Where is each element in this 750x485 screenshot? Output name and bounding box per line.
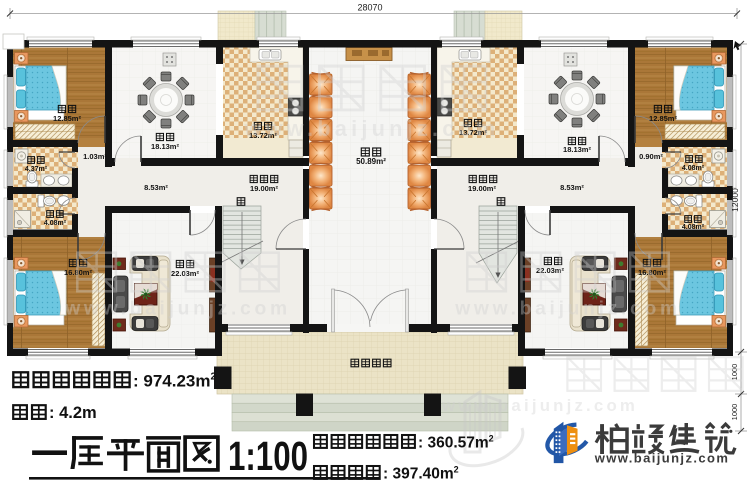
svg-text:: 360.57m2: : 360.57m2	[418, 434, 494, 452]
svg-text:0.90m²: 0.90m²	[639, 152, 663, 161]
svg-text:19.00m²: 19.00m²	[250, 184, 278, 193]
svg-text:12.85m²: 12.85m²	[649, 114, 677, 123]
svg-text:www.baijunjz.com: www.baijunjz.com	[243, 116, 499, 141]
svg-text:: 397.40m2: : 397.40m2	[383, 465, 459, 483]
svg-text:12.85m²: 12.85m²	[53, 114, 81, 123]
svg-text:19.00m²: 19.00m²	[468, 184, 496, 193]
svg-text:www.baijunjz.com: www.baijunjz.com	[594, 451, 730, 466]
svg-text:1:100: 1:100	[228, 433, 308, 479]
svg-text:28070: 28070	[357, 3, 382, 13]
svg-text:www.baijunjz.com: www.baijunjz.com	[454, 298, 681, 319]
svg-text:18.13m²: 18.13m²	[151, 142, 179, 151]
svg-text:4.08m²: 4.08m²	[682, 224, 705, 231]
svg-text:50.89m²: 50.89m²	[356, 157, 386, 166]
svg-text:1.03m²: 1.03m²	[83, 152, 107, 161]
svg-text:4.37m²: 4.37m²	[25, 166, 48, 173]
svg-text:18.13m²: 18.13m²	[563, 145, 591, 154]
svg-text:12000: 12000	[730, 188, 740, 212]
svg-text:1000: 1000	[730, 404, 739, 421]
svg-text:www.baijunjz.com: www.baijunjz.com	[64, 298, 291, 319]
svg-text:1000: 1000	[730, 364, 739, 381]
svg-text:8.53m²: 8.53m²	[144, 183, 168, 192]
svg-text:4.08m²: 4.08m²	[682, 165, 705, 172]
svg-text:: 4.2m: : 4.2m	[49, 404, 97, 422]
svg-text:8.53m²: 8.53m²	[560, 183, 584, 192]
svg-text:: 974.23m2: : 974.23m2	[133, 372, 217, 391]
svg-text:4.08m²: 4.08m²	[44, 220, 67, 227]
